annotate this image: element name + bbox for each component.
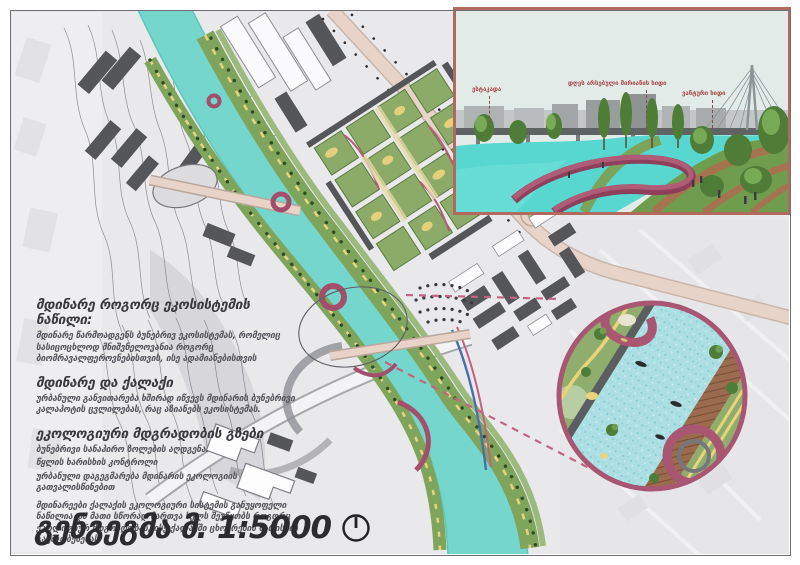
sustainability-bullet-list: ბუნებრივი სანაპირო ზოლების აღდგენა. წყლი… (36, 445, 304, 495)
section-heading-river-ecosystem: მდინარე როგორც ეკოსისტემის ნაწილი: (36, 298, 304, 328)
section-heading-river-city: მდინარე და ქალაქი (36, 376, 304, 391)
bullet-item: ურბანული დაგეგმარება მდინარის ეკოლოგიის … (36, 472, 304, 495)
leader-line (489, 96, 490, 128)
bullet-item: წყლის ხარისხის კონტროლი (36, 458, 304, 470)
render-inset: ესტაკადა დღეს არსებული მირიანის ხიდი ვან… (453, 7, 791, 215)
north-indicator-icon (341, 513, 371, 543)
section-heading-sustainability: ეკოლოგიური მდგრადობის გზები (36, 427, 304, 442)
inset-label-right: ვანტური ხიდი (682, 90, 725, 97)
leader-line (646, 90, 647, 134)
inset-label-middle: დღეს არსებული მირიანის ხიდი (568, 80, 666, 87)
leader-line (712, 100, 713, 128)
masterplan-sheet: მდინარე როგორც ეკოსისტემის ნაწილი: მდინა… (0, 0, 800, 565)
scale-title: გენგეგმა მ. 1:5000 (34, 510, 331, 546)
section-body-river-city: ურბანული განვითარება ხშირად იწვევს მდინა… (36, 394, 304, 417)
bullet-item: ბუნებრივი სანაპირო ზოლების აღდგენა. (36, 445, 304, 457)
section-body-river-ecosystem: მდინარე წარმოადგენს ბუნებრივ ეკოსისტემას… (36, 331, 304, 366)
render-scene (456, 10, 788, 212)
inset-label-left: ესტაკადა (472, 86, 501, 93)
scale-title-row: გენგეგმა მ. 1:5000 (34, 510, 371, 546)
